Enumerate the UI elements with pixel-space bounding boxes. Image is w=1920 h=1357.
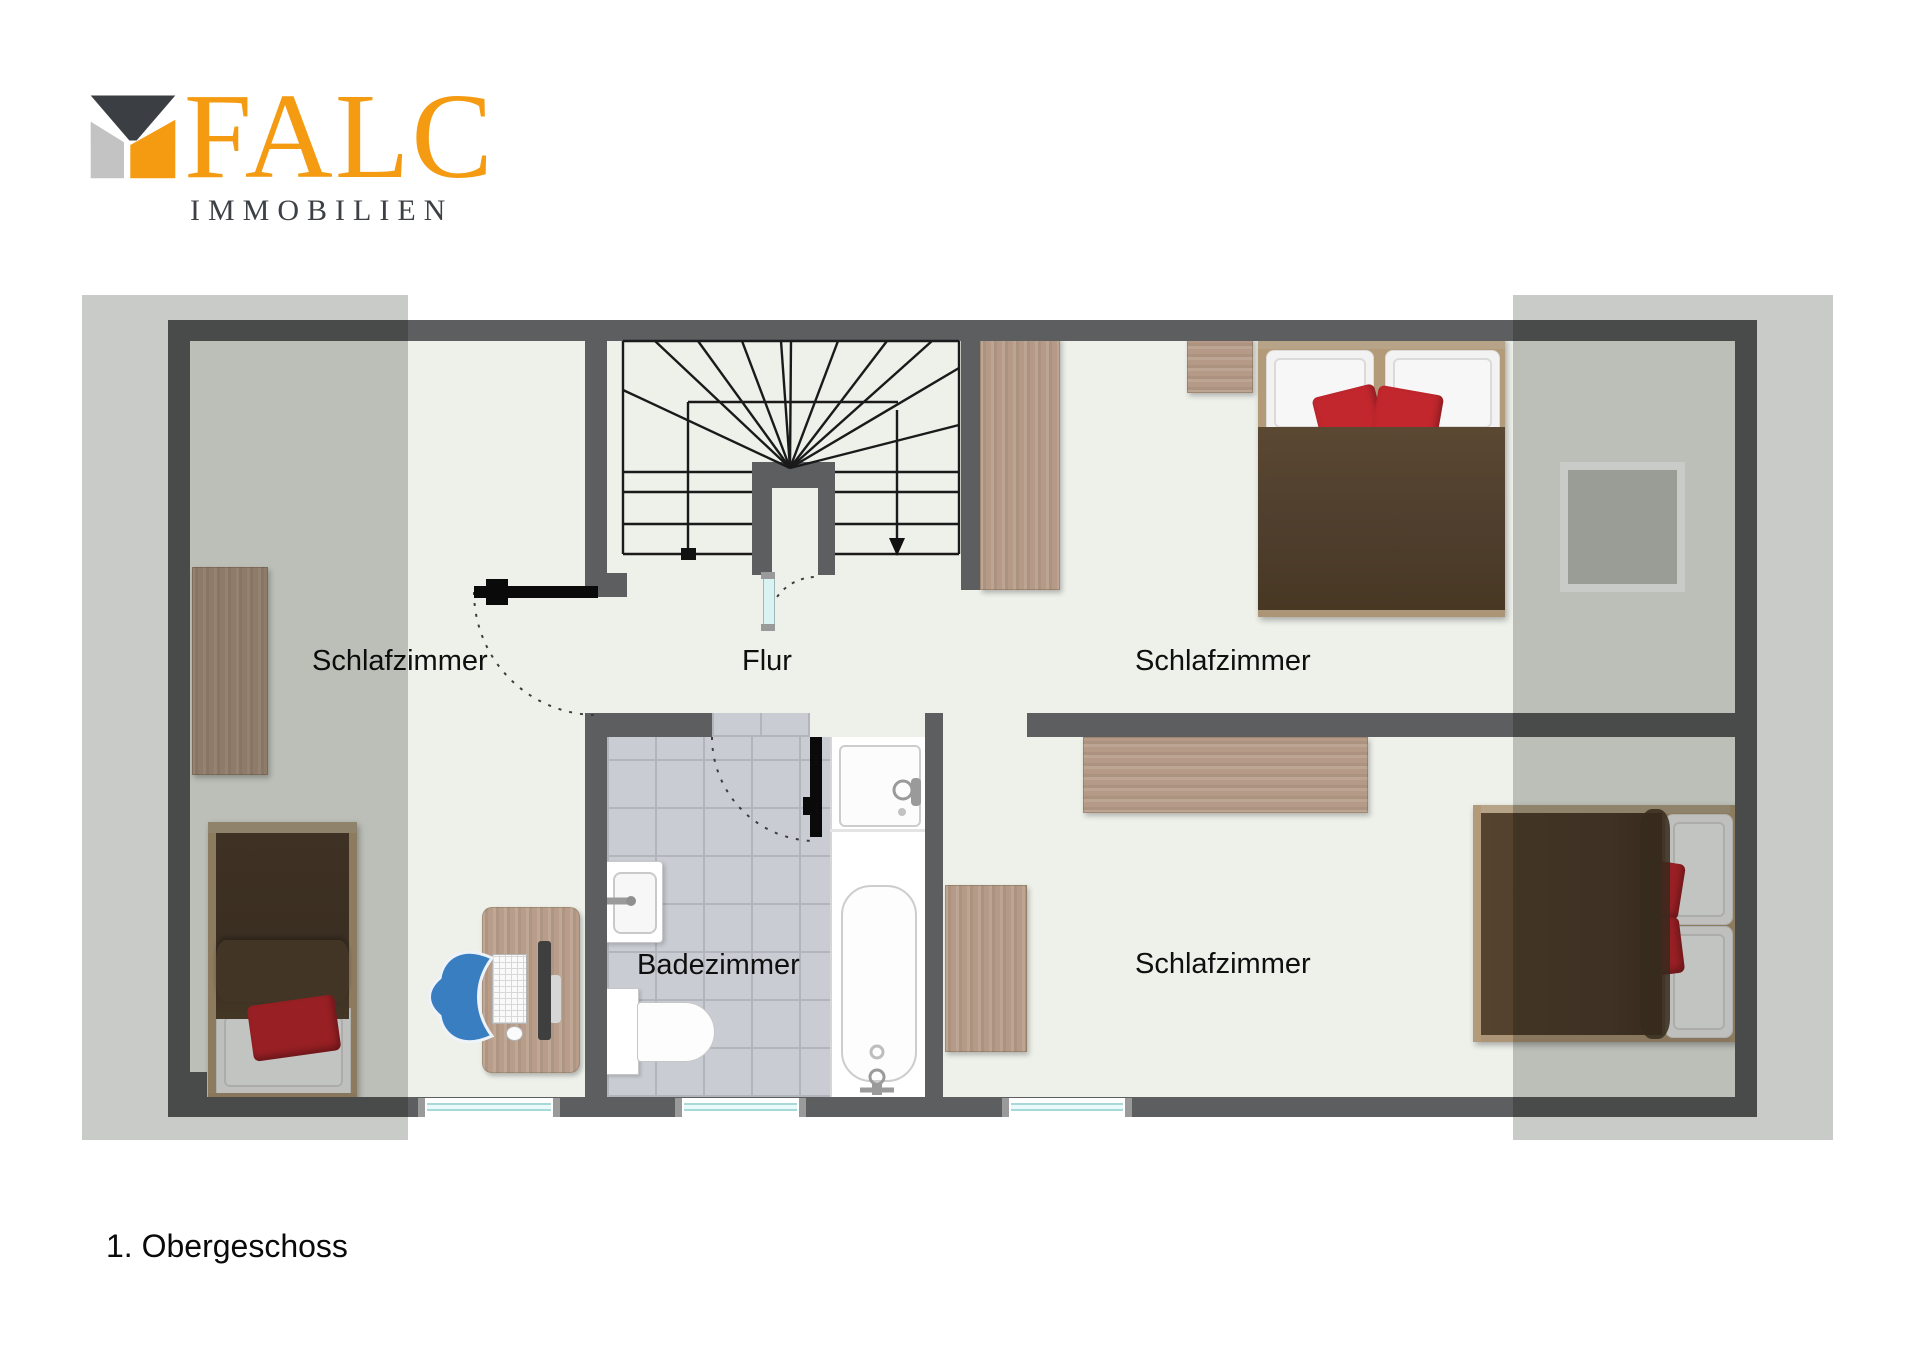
room-label-bathroom: Badezimmer xyxy=(637,949,800,982)
room-label-bedroom-left: Schlafzimmer xyxy=(312,645,488,678)
doors-and-details-layer xyxy=(0,0,1920,1357)
office-chair-icon xyxy=(430,952,493,1041)
under-stair-door-arc xyxy=(768,577,816,625)
door-jamb xyxy=(761,624,775,631)
room-label-bedroom-top-right: Schlafzimmer xyxy=(1135,645,1311,678)
window xyxy=(675,1098,806,1117)
under-stair-door xyxy=(763,578,775,627)
bedroom-left-door xyxy=(474,579,598,715)
bathroom-door xyxy=(712,737,822,841)
door-jamb xyxy=(761,572,775,579)
faucet-icon xyxy=(607,896,636,906)
window xyxy=(418,1098,560,1117)
room-label-hall: Flur xyxy=(742,645,792,678)
bathtub-faucet-icon xyxy=(860,1046,894,1095)
room-label-bedroom-bottom-right: Schlafzimmer xyxy=(1135,948,1311,981)
window xyxy=(1002,1098,1132,1117)
shower-fixture-icon xyxy=(894,778,921,816)
floor-plan-page: FALC IMMOBILIEN xyxy=(0,0,1920,1357)
page-title: 1. Obergeschoss xyxy=(106,1228,348,1265)
